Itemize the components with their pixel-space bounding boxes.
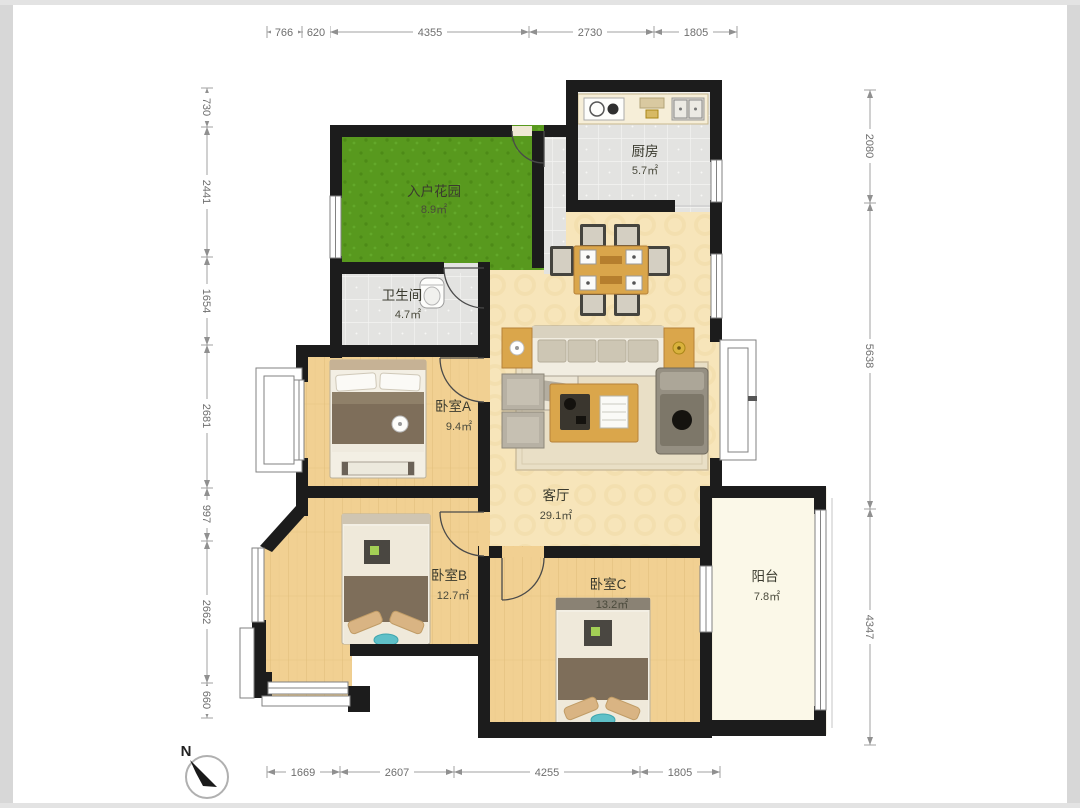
bathroom-furniture [420,278,444,308]
balcony-right-window [815,498,832,728]
dimension-bottom: 1669 2607 4255 1805 [267,765,720,779]
balcony-area: 7.8㎡ [754,590,780,603]
balcony-sliding-door [700,566,712,632]
bedroom-b-furniture [342,514,430,646]
bedroom-a-area: 9.4㎡ [446,420,472,433]
entry-garden-name: 入户花园 [407,183,461,199]
entry-garden-area: 8.9㎡ [421,203,447,216]
foot-bench [342,462,414,475]
dim-right-2: 4347 [863,615,875,639]
dim-right-1: 5638 [863,344,875,368]
bathroom-name: 卫生间 [382,288,423,303]
sofa-set [502,326,708,470]
bedroom-c-area: 13.2㎡ [596,598,628,611]
living-room-bay-window [720,340,757,460]
dimension-left: 730 2441 1654 2681 997 2662 660 [200,88,214,718]
balcony-floor [712,488,826,734]
dim-left-1: 2441 [200,180,212,204]
north-label: N [181,743,192,760]
dim-top-2: 4355 [418,27,442,39]
dim-left-0: 730 [200,98,212,116]
dim-bottom-0: 1669 [291,767,315,779]
bedroom-a-name: 卧室A [435,398,471,414]
bedroom-c-furniture [556,598,650,734]
bedroom-a-furniture [330,360,426,478]
bathroom-area: 4.7㎡ [395,308,421,321]
floor-plan: 入户花园 8.9㎡ 厨房 5.7㎡ 卫生间 4.7㎡ 卧室A 9.4㎡ 客厅 2… [0,0,1080,808]
dim-bottom-3: 1805 [668,767,692,779]
bedroom-c-name: 卧室C [590,576,627,592]
dining-right-window [711,254,722,318]
dim-top-0: 766 [275,27,293,39]
bedroom-a-bay-window [256,368,304,472]
bedroom-b-area: 12.7㎡ [437,589,469,602]
dim-bottom-1: 2607 [385,767,409,779]
dim-bottom-2: 4255 [535,767,559,779]
living-room-name: 客厅 [543,487,570,503]
dim-left-2: 1654 [200,289,212,313]
dim-top-3: 2730 [578,27,602,39]
dim-left-6: 660 [200,691,212,709]
dim-left-4: 997 [200,505,212,523]
balcony-name: 阳台 [752,569,779,584]
floor-plan-page: 入户花园 8.9㎡ 厨房 5.7㎡ 卫生间 4.7㎡ 卧室A 9.4㎡ 客厅 2… [0,0,1080,808]
dim-top-1: 620 [307,27,325,39]
kitchen-name: 厨房 [632,144,659,159]
dim-left-5: 2662 [200,600,212,624]
garden-left-window [330,196,341,258]
living-room-area: 29.1㎡ [540,509,572,522]
compass: N [181,743,228,798]
kitchen-area: 5.7㎡ [632,164,658,177]
dim-right-0: 2080 [863,134,875,158]
kitchen-furniture [578,94,708,124]
bedroom-b-name: 卧室B [431,567,467,583]
dimension-top: 766 620 4355 2730 1805 [267,25,737,39]
dimension-right: 2080 5638 4347 [863,90,877,745]
dim-left-3: 2681 [200,404,212,428]
dim-top-4: 1805 [684,27,708,39]
range-hood [640,98,664,108]
kitchen-right-window [711,160,722,202]
